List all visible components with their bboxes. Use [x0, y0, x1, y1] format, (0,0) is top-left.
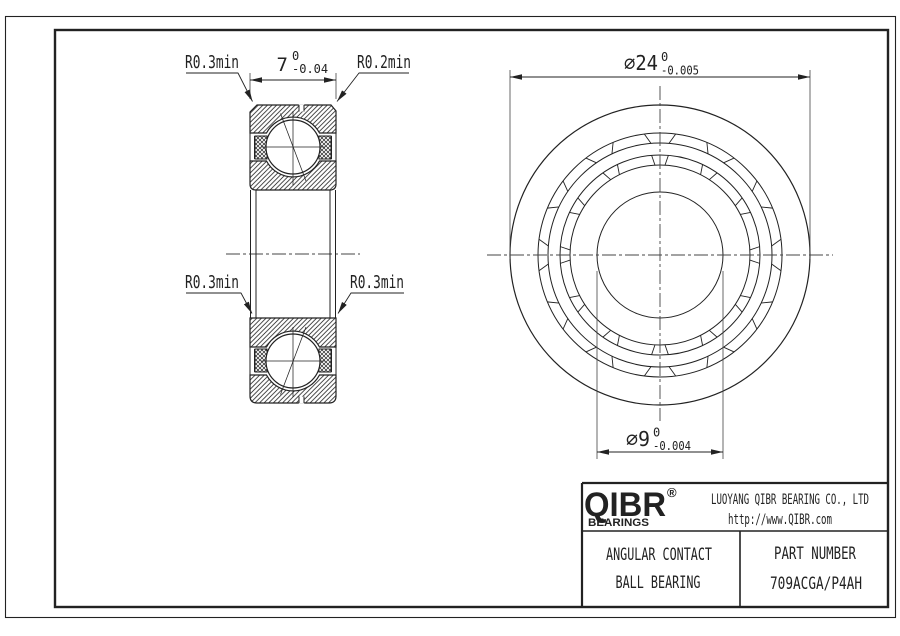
cage-pocket-line [709, 173, 717, 180]
cage-pocket-line [547, 207, 558, 208]
cage-section-right [319, 136, 331, 159]
cage-pocket-line [563, 319, 568, 330]
leader-line-top-left [186, 73, 253, 102]
cage-pocket-line [665, 345, 668, 355]
company-website: http://www.QIBR.com [728, 512, 832, 528]
leader-line-bottom-left [186, 293, 252, 314]
cage-pocket-line [750, 260, 760, 263]
cage-pocket-line [539, 239, 548, 246]
lower-half-section [250, 318, 336, 404]
cage-pocket-line [617, 165, 619, 175]
cage-pocket-line [701, 335, 703, 345]
cage-pocket-line [586, 158, 597, 163]
cage-pocket-line [750, 247, 760, 250]
cage-pocket-line [669, 134, 676, 143]
cage-pocket-line [740, 212, 750, 214]
cage-pocket-line [665, 155, 668, 165]
cage-pocket-line [644, 134, 651, 143]
part-number-value: 709ACGA/P4AH [770, 574, 862, 594]
cage-pocket-line [752, 319, 757, 330]
cage-pocket-line [707, 142, 708, 153]
cage-pocket-line [709, 330, 717, 337]
cage-pocket-line [761, 302, 772, 303]
dim-bore-value: ⌀9 [626, 427, 650, 451]
dim-width-tol-upper: 0 [292, 49, 299, 63]
filling-slot [299, 397, 304, 404]
engineering-drawing: 7 0 -0.04 R0.3min R0.2min R0.3min R0.3mi… [0, 0, 900, 636]
dim-bore-tol-lower: -0.004 [653, 439, 691, 453]
cage-pocket-line [724, 347, 735, 352]
leader-label-bottom-left: R0.3min [185, 272, 239, 293]
cage-section-right [319, 349, 331, 372]
cage-pocket-line [586, 347, 597, 352]
leader-label-top-right: R0.2min [357, 52, 411, 73]
upper-half-section [250, 104, 336, 190]
dim-outer-tol-upper: 0 [661, 50, 668, 64]
cage-pocket-line [707, 356, 708, 367]
cage-pocket-line [570, 296, 580, 298]
leader-line-top-right [337, 73, 409, 102]
brand-logo: QIBR ® BEARINGS [584, 485, 677, 529]
cage-pocket-line [617, 335, 619, 345]
dim-bore-tol-upper: 0 [653, 426, 660, 440]
drawing-sheet: 7 0 -0.04 R0.3min R0.2min R0.3min R0.3mi… [0, 0, 900, 636]
part-number-label: PART NUMBER [774, 544, 857, 564]
leader-label-bottom-right: R0.3min [350, 272, 404, 293]
leader-line-bottom-right [338, 293, 404, 314]
cage-pocket-line [560, 260, 570, 263]
cage-pocket-line [740, 296, 750, 298]
company-name: LUOYANG QIBR BEARING CO., LTD [711, 492, 869, 508]
cage-pocket-line [603, 330, 611, 337]
dim-width-tol-lower: -0.04 [292, 62, 328, 76]
dim-width: 7 0 -0.04 [250, 49, 336, 99]
cage-pocket-line [644, 367, 651, 376]
cage-pocket-line [578, 198, 585, 206]
product-type-line2: BALL BEARING [616, 573, 701, 593]
cage-pocket-line [772, 239, 781, 246]
cage-pocket-line [669, 367, 676, 376]
cage-pocket-line [735, 304, 742, 312]
cage-pocket-line [612, 142, 613, 153]
dim-outer-tol-lower: -0.005 [661, 64, 699, 78]
registered-trademark-icon: ® [667, 485, 677, 500]
title-block: QIBR ® BEARINGS LUOYANG QIBR BEARING CO.… [582, 483, 888, 607]
cage-pocket-line [547, 302, 558, 303]
cage-section-left [255, 136, 267, 159]
cage-pocket-line [752, 181, 757, 192]
product-type-line1: ANGULAR CONTACT [606, 545, 712, 565]
cage-pocket-line [652, 345, 655, 355]
cage-section-left [255, 349, 267, 372]
cage-pocket-line [563, 181, 568, 192]
cage-pocket-line [735, 198, 742, 206]
leader-label-top-left: R0.3min [185, 52, 239, 73]
logo-subtext: BEARINGS [588, 517, 649, 529]
front-view: ⌀24 0 -0.005 ⌀9 0 -0.004 [487, 50, 833, 459]
cage-pocket-line [772, 264, 781, 271]
cage-pocket-line [560, 247, 570, 250]
dim-outer-value: ⌀24 [624, 51, 658, 75]
cage-pocket-line [539, 264, 548, 271]
dim-width-value: 7 [277, 54, 288, 76]
cage-pocket-line [701, 165, 703, 175]
cage-pocket-line [761, 207, 772, 208]
section-view: 7 0 -0.04 R0.3min R0.2min R0.3min R0.3mi… [185, 49, 411, 404]
cage-pocket-line [652, 155, 655, 165]
filling-slot [299, 104, 304, 111]
cage-pocket-line [612, 356, 613, 367]
cage-pocket-line [570, 212, 580, 214]
cage-pocket-line [603, 173, 611, 180]
view-centerlines [487, 86, 833, 421]
cage-pocket-line [724, 158, 735, 163]
cage-pocket-line [578, 304, 585, 312]
